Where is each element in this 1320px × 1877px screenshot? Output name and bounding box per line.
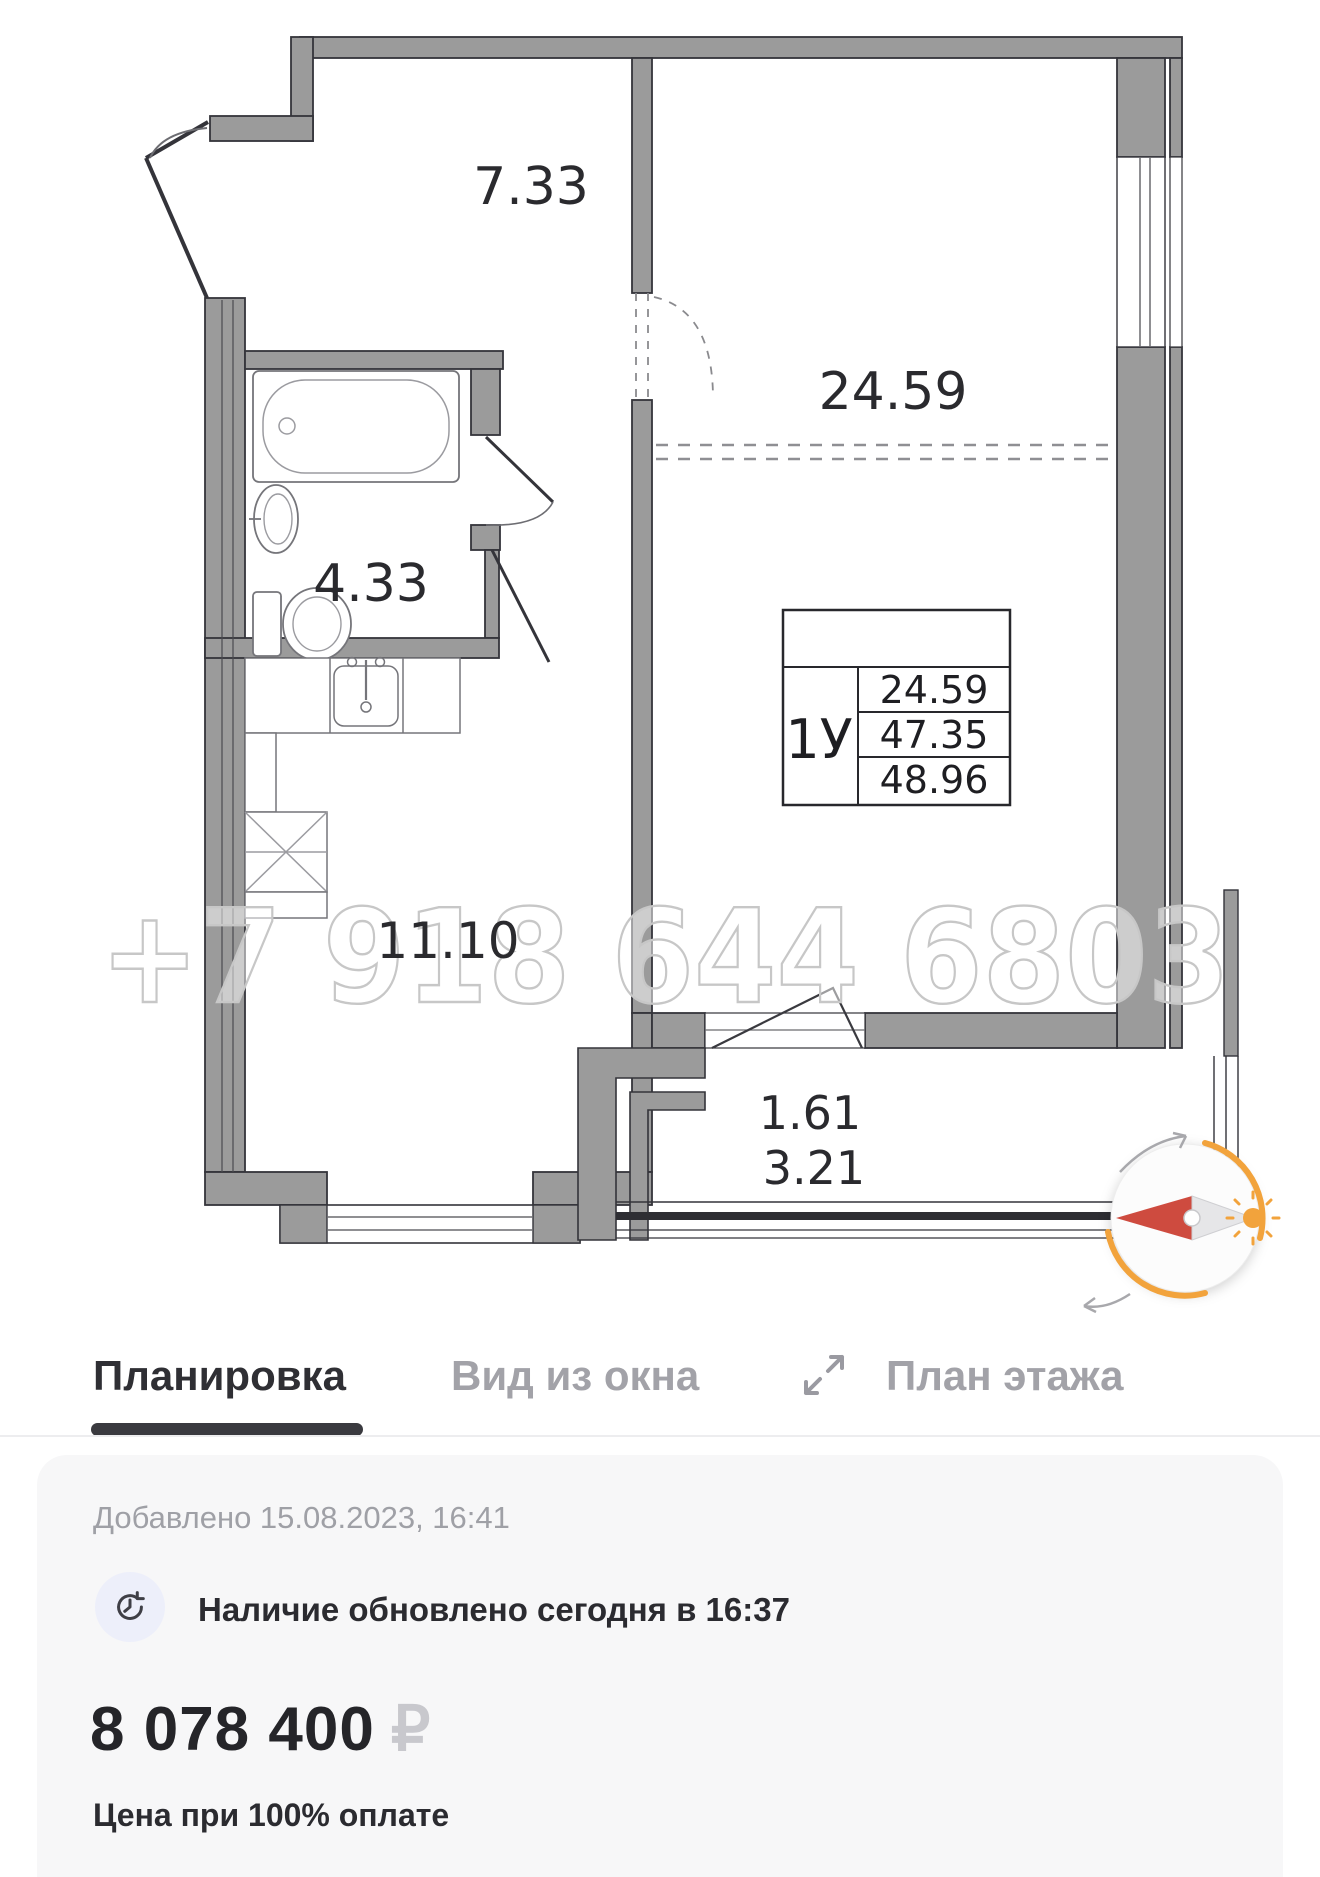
sink-bathroom [249,485,298,553]
tab-floor-plan[interactable]: План этажа [886,1352,1123,1400]
room-label-bathroom: 4.33 [313,554,429,614]
price-note: Цена при 100% оплате [93,1797,449,1834]
floor-plan-image[interactable]: +7 918 644 6803 7.33 4.33 24.59 11.10 1.… [0,0,1320,1320]
added-date-text: Добавлено 15.08.2023, 16:41 [93,1500,510,1536]
compass-icon[interactable] [1084,1133,1279,1312]
tab-layout[interactable]: Планировка [93,1352,346,1400]
legend-total-area: 48.96 [880,758,989,802]
door-living-room [636,293,713,400]
entrance-door [146,122,208,298]
room-label-living-room: 24.59 [819,362,968,422]
tab-window-view[interactable]: Вид из окна [451,1352,699,1400]
legend-area-no-balcony: 47.35 [880,713,989,757]
room-label-balcony-reduced: 1.61 [759,1086,861,1140]
room-label-kitchen: 11.10 [376,912,519,970]
balcony-walls [578,1048,705,1240]
bathroom-door [486,437,553,525]
tab-bar: Планировка Вид из окна План этажа [0,1320,1320,1440]
watermark-phone: +7 918 644 6803 [100,881,1230,1033]
legend-table: 1У 24.59 47.35 48.96 [783,610,1010,805]
currency-symbol: ₽ [391,1695,431,1764]
window-living-room [1117,157,1182,347]
availability-text: Наличие обновлено сегодня в 16:37 [198,1591,790,1629]
legend-apartment-type: 1У [785,708,852,771]
price: 8 078 400₽ [90,1692,431,1765]
tabbar-divider [0,1435,1320,1437]
kitchen-counter [245,658,460,813]
window-kitchen [280,1205,580,1243]
price-value: 8 078 400 [90,1695,375,1764]
legend-living-area: 24.59 [880,668,989,712]
room-label-balcony-full: 3.21 [763,1141,865,1195]
clock-history-icon [95,1572,165,1642]
expand-icon[interactable] [800,1351,848,1399]
room-label-hallway: 7.33 [473,157,589,217]
bathtub [253,371,459,482]
kitchen-door [492,550,549,662]
zone-divider-dashed [656,445,1117,459]
